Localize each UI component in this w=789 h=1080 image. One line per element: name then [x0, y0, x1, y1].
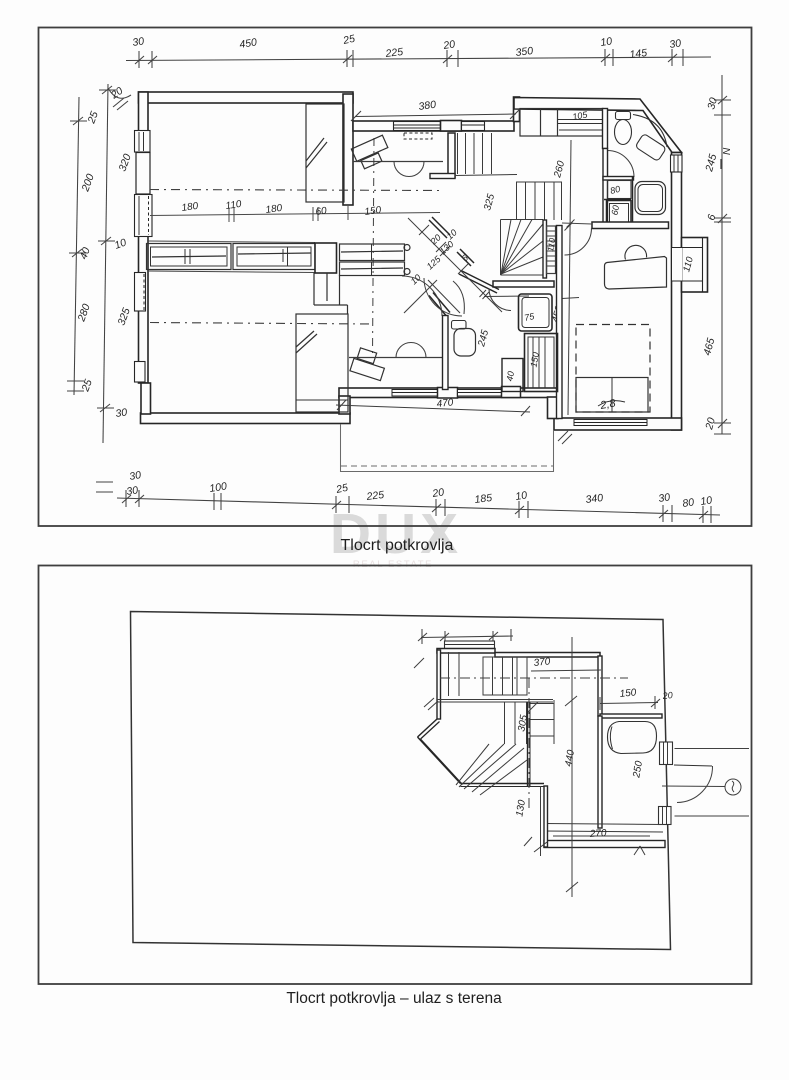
svg-text:30: 30: [669, 37, 683, 51]
svg-text:145: 145: [629, 47, 648, 61]
svg-text:225: 225: [365, 489, 385, 503]
svg-text:470: 470: [436, 397, 454, 410]
svg-text:80: 80: [682, 496, 696, 510]
svg-text:Tlocrt potkrovlja: Tlocrt potkrovlja: [341, 537, 454, 554]
svg-text:350: 350: [515, 45, 534, 59]
svg-text:20: 20: [431, 486, 446, 500]
svg-text:370: 370: [533, 656, 551, 669]
svg-text:30: 30: [128, 469, 142, 483]
svg-text:DUX: DUX: [330, 502, 462, 566]
svg-text:10: 10: [700, 494, 714, 508]
svg-text:30: 30: [658, 491, 672, 505]
svg-text:10: 10: [515, 489, 529, 503]
svg-text:Tlocrt potkrovlja – ulaz s ter: Tlocrt potkrovlja – ulaz s terena: [286, 990, 502, 1007]
svg-text:60: 60: [315, 205, 328, 218]
svg-text:185: 185: [474, 492, 493, 506]
svg-text:225: 225: [384, 46, 404, 60]
svg-text:270: 270: [588, 828, 607, 840]
svg-text:150: 150: [619, 687, 637, 700]
svg-text:REAL ESTATE: REAL ESTATE: [353, 559, 433, 570]
svg-text:N: N: [722, 147, 733, 155]
svg-text:380: 380: [418, 99, 437, 113]
svg-text:30: 30: [115, 406, 128, 420]
svg-text:20: 20: [442, 38, 457, 52]
svg-text:60: 60: [610, 204, 622, 216]
svg-text:110: 110: [225, 199, 243, 212]
svg-text:40: 40: [505, 370, 517, 382]
svg-text:10: 10: [600, 35, 614, 49]
svg-text:20: 20: [661, 690, 673, 701]
svg-text:30: 30: [126, 484, 140, 498]
svg-text:340: 340: [585, 492, 604, 506]
svg-text:30: 30: [132, 35, 146, 49]
